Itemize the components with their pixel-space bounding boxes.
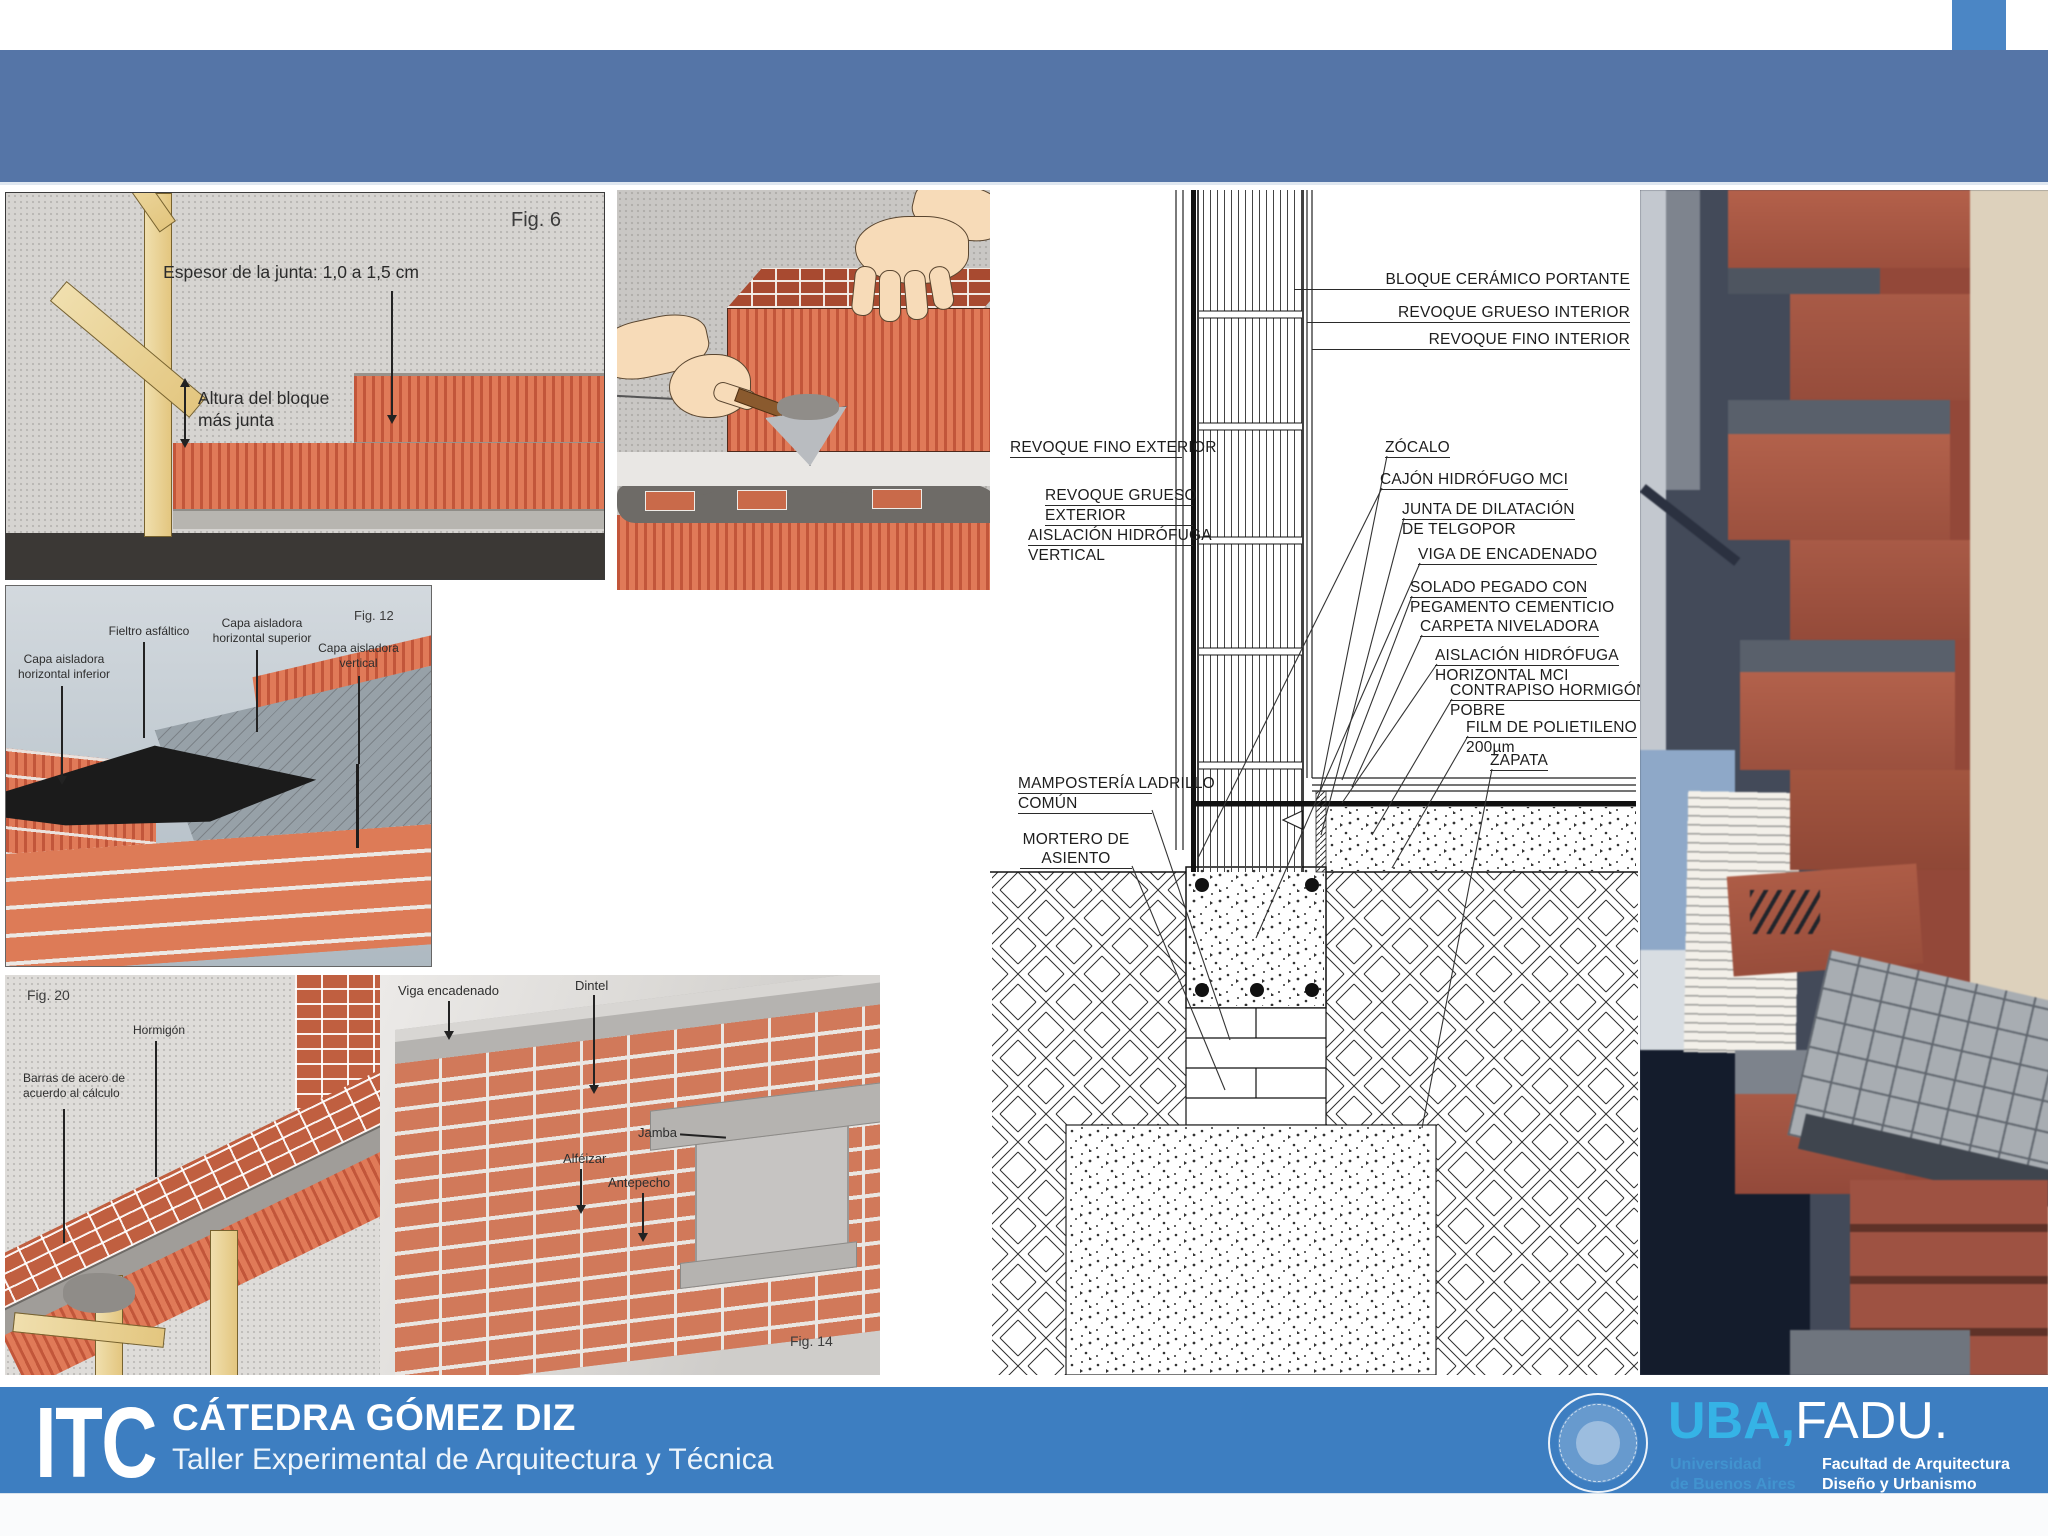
label-aislacion-vertical: AISLACIÓN HIDRÓFUGA VERTICAL [1028,526,1193,565]
joint-thickness-label: Espesor de la junta: 1,0 a 1,5 cm [126,261,456,283]
dimension-arrow [184,381,186,445]
brick-block [1728,190,1970,268]
figure-fig6: Fig. 6 Espesor de la junta: 1,0 a 1,5 cm… [5,192,605,580]
label-jamba: Jamba [638,1125,677,1140]
label-zapata: ZAPATA [1490,751,1548,771]
label-fieltro-asfaltico: Fieltro asfáltico [94,624,204,639]
label-junta-dilatacion: JUNTA DE DILATACIÓN DE TELGOPOR [1402,500,1575,539]
leader-line [143,642,145,738]
footer-bottom-strip [0,1493,2048,1536]
brick-wall-shape [617,515,1002,590]
leader-arrow [580,1169,582,1211]
brick-block [1790,294,1970,400]
leader-line [256,650,258,732]
brick-block [1790,770,1970,870]
brick-end-shape [737,490,787,510]
mortar-strip-shape [173,509,604,529]
label-viga-encadenado: VIGA DE ENCADENADO [1418,545,1597,565]
label-carpeta: CARPETA NIVELADORA [1420,617,1599,637]
footer-subtitle: Taller Experimental de Arquitectura y Té… [172,1443,773,1477]
leader-arrow [642,1193,644,1239]
label-contrapiso: CONTRAPISO HORMIGÓN POBRE [1450,681,1648,720]
header-band [0,50,2048,185]
brick-course-lower [173,443,604,512]
brick-top-surface [1790,1330,1970,1375]
uba-text: UBA, [1668,1392,1795,1450]
uba-seal [1548,1393,1648,1493]
leader-arrow [448,1001,450,1037]
label-capa-inferior: Capa aisladora horizontal inferior [14,652,114,682]
brick-top-surface [1728,400,1950,434]
ground-shape [6,533,604,579]
label-viga-encadenado: Viga encadenado [398,983,499,998]
fig14-tag: Fig. 14 [790,1333,833,1349]
facultad-text: Facultad de Arquitectura Diseño y Urbani… [1822,1455,2010,1495]
fig6-tag: Fig. 6 [511,209,561,232]
label-antepecho: Antepecho [608,1175,670,1190]
fadu-text: FADU. [1795,1392,1948,1450]
block-height-label: Altura del bloque más junta [198,387,329,431]
universidad-text: Universidad de Buenos Aires [1670,1455,1796,1495]
fig12-tag: Fig. 12 [354,608,394,623]
brick-end-shape [645,491,695,511]
brick-end-shape [872,489,922,509]
label-barras-acero: Barras de acero de acuerdo al cálculo [23,1071,125,1101]
label-solado: SOLADO PEGADO CON PEGAMENTO CEMENTICIO [1410,578,1614,617]
label-aislacion-horizontal: AISLACIÓN HIDRÓFUGA HORIZONTAL MCI [1435,646,1619,685]
rebar-ties [1750,890,1820,934]
finger-shape [903,269,929,321]
figure-hand-laying [617,190,1002,590]
figure-fig20: Fig. 20 Hormigón Barras de acero de acue… [5,975,380,1375]
block-front-face [727,308,991,452]
photo-content [1640,190,2048,1375]
label-revoque-fino-exterior: REVOQUE FINO EXTERIOR [1010,438,1182,458]
leader-line [155,1041,157,1177]
background-strip [1666,190,1700,490]
label-dintel: Dintel [575,978,608,993]
brick-masonry [1186,1008,1326,1125]
leader-arrow [61,686,63,782]
label-revoque-grueso-exterior: REVOQUE GRUESO EXTERIOR [1045,486,1193,526]
brick-block [1728,434,1950,540]
brick-top-surface [1728,268,1880,294]
label-revoque-fino-interior: REVOQUE FINO INTERIOR [1312,330,1630,350]
brick-block [1740,672,1955,770]
photo-brick-corner [1640,190,2048,1375]
leader-line [63,1109,65,1243]
uba-fadu-wordmark: UBA,FADU. [1668,1393,1948,1449]
footer-logo: ITC [35,1400,156,1486]
fig20-tag: Fig. 20 [27,987,70,1003]
label-cajon-hidrofugo: CAJÓN HIDRÓFUGO MCI [1380,470,1568,490]
label-hormigon: Hormigón [133,1023,185,1038]
label-capa-superior: Capa aisladora horizontal superior [206,616,318,646]
footing-zapata [1066,1125,1436,1375]
label-revoque-grueso-interior: REVOQUE GRUESO INTERIOR [1307,303,1630,323]
footer-title: CÁTEDRA GÓMEZ DIZ [172,1397,576,1439]
brick-top-surface [1740,640,1955,672]
label-mamposteria: MAMPOSTERÍA LADRILLO COMÚN [1018,774,1152,814]
corner-accent-square [1952,0,2006,52]
label-capa-vertical: Capa aisladora vertical [311,641,406,671]
leader-arrow [391,291,393,421]
seal-emblem [1576,1421,1620,1465]
mortar-spill-shape [63,1273,135,1313]
figure-fig14: Viga encadenado Dintel Jamba Alféizar An… [380,975,880,1375]
label-alfeizar: Alféizar [563,1151,606,1166]
wood-brace-shape [50,281,206,418]
brick-block [1790,540,1970,640]
mortar-on-trowel [777,394,839,420]
label-mortero: MORTERO DE ASIENTO [1020,830,1132,869]
leader-arrow [593,995,595,1091]
leader-line [358,676,360,764]
finger-shape [879,270,901,322]
label-zocalo: ZÓCALO [1385,438,1450,458]
wood-prop-shape [210,1230,238,1375]
figure-fig12: Fig. 12 Fieltro asfáltico Capa aisladora… [5,585,432,967]
vertical-membrane-shape [356,764,359,848]
section-detail: BLOQUE CERÁMICO PORTANTE REVOQUE GRUESO … [990,190,1640,1375]
label-bloque-ceramico: BLOQUE CERÁMICO PORTANTE [1294,270,1630,290]
slide: Fig. 6 Espesor de la junta: 1,0 a 1,5 cm… [0,0,2048,1536]
